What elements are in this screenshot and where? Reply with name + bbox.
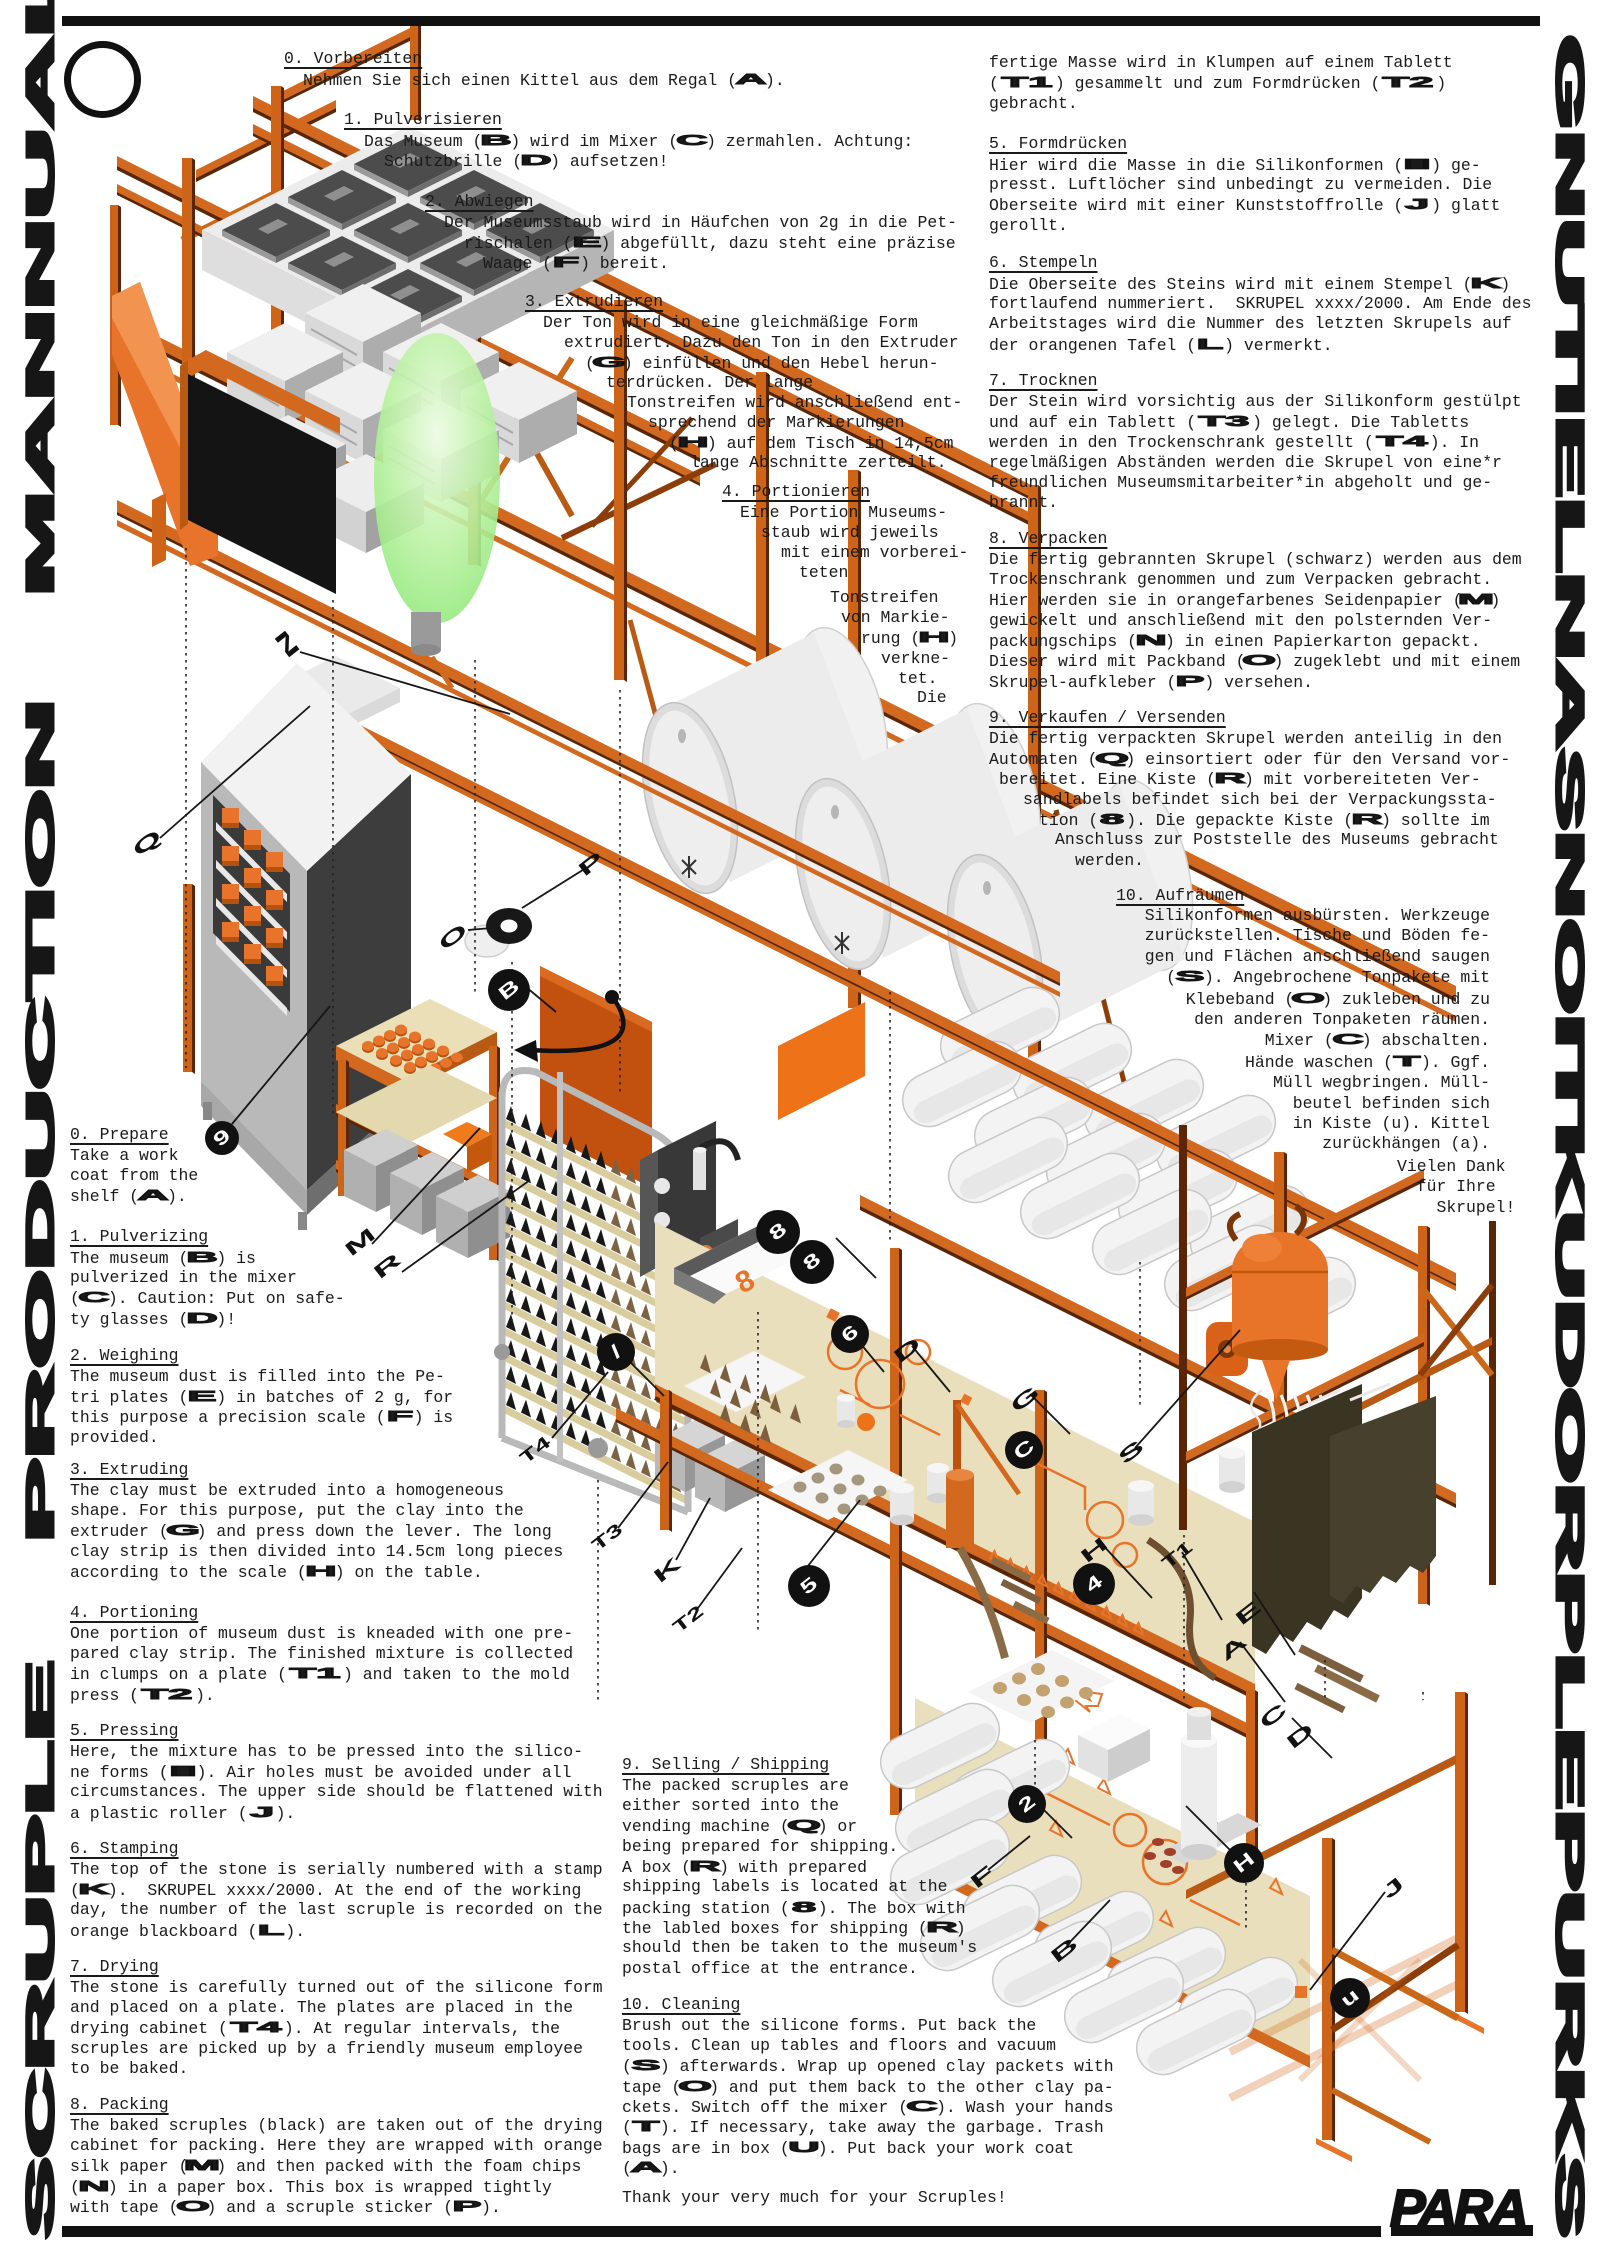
svg-text:D: D	[1282, 1719, 1318, 1753]
svg-text:N: N	[270, 626, 304, 662]
svg-text:T4: T4	[516, 1432, 554, 1467]
svg-text:R: R	[369, 1249, 405, 1283]
svg-text:K: K	[649, 1552, 685, 1587]
svg-text:T2: T2	[669, 1601, 707, 1636]
svg-text:Q: Q	[128, 825, 165, 861]
svg-text:O: O	[434, 919, 472, 955]
svg-text:C: C	[1255, 1699, 1291, 1733]
svg-text:J: J	[1378, 1873, 1409, 1903]
svg-text:M: M	[340, 1223, 379, 1260]
